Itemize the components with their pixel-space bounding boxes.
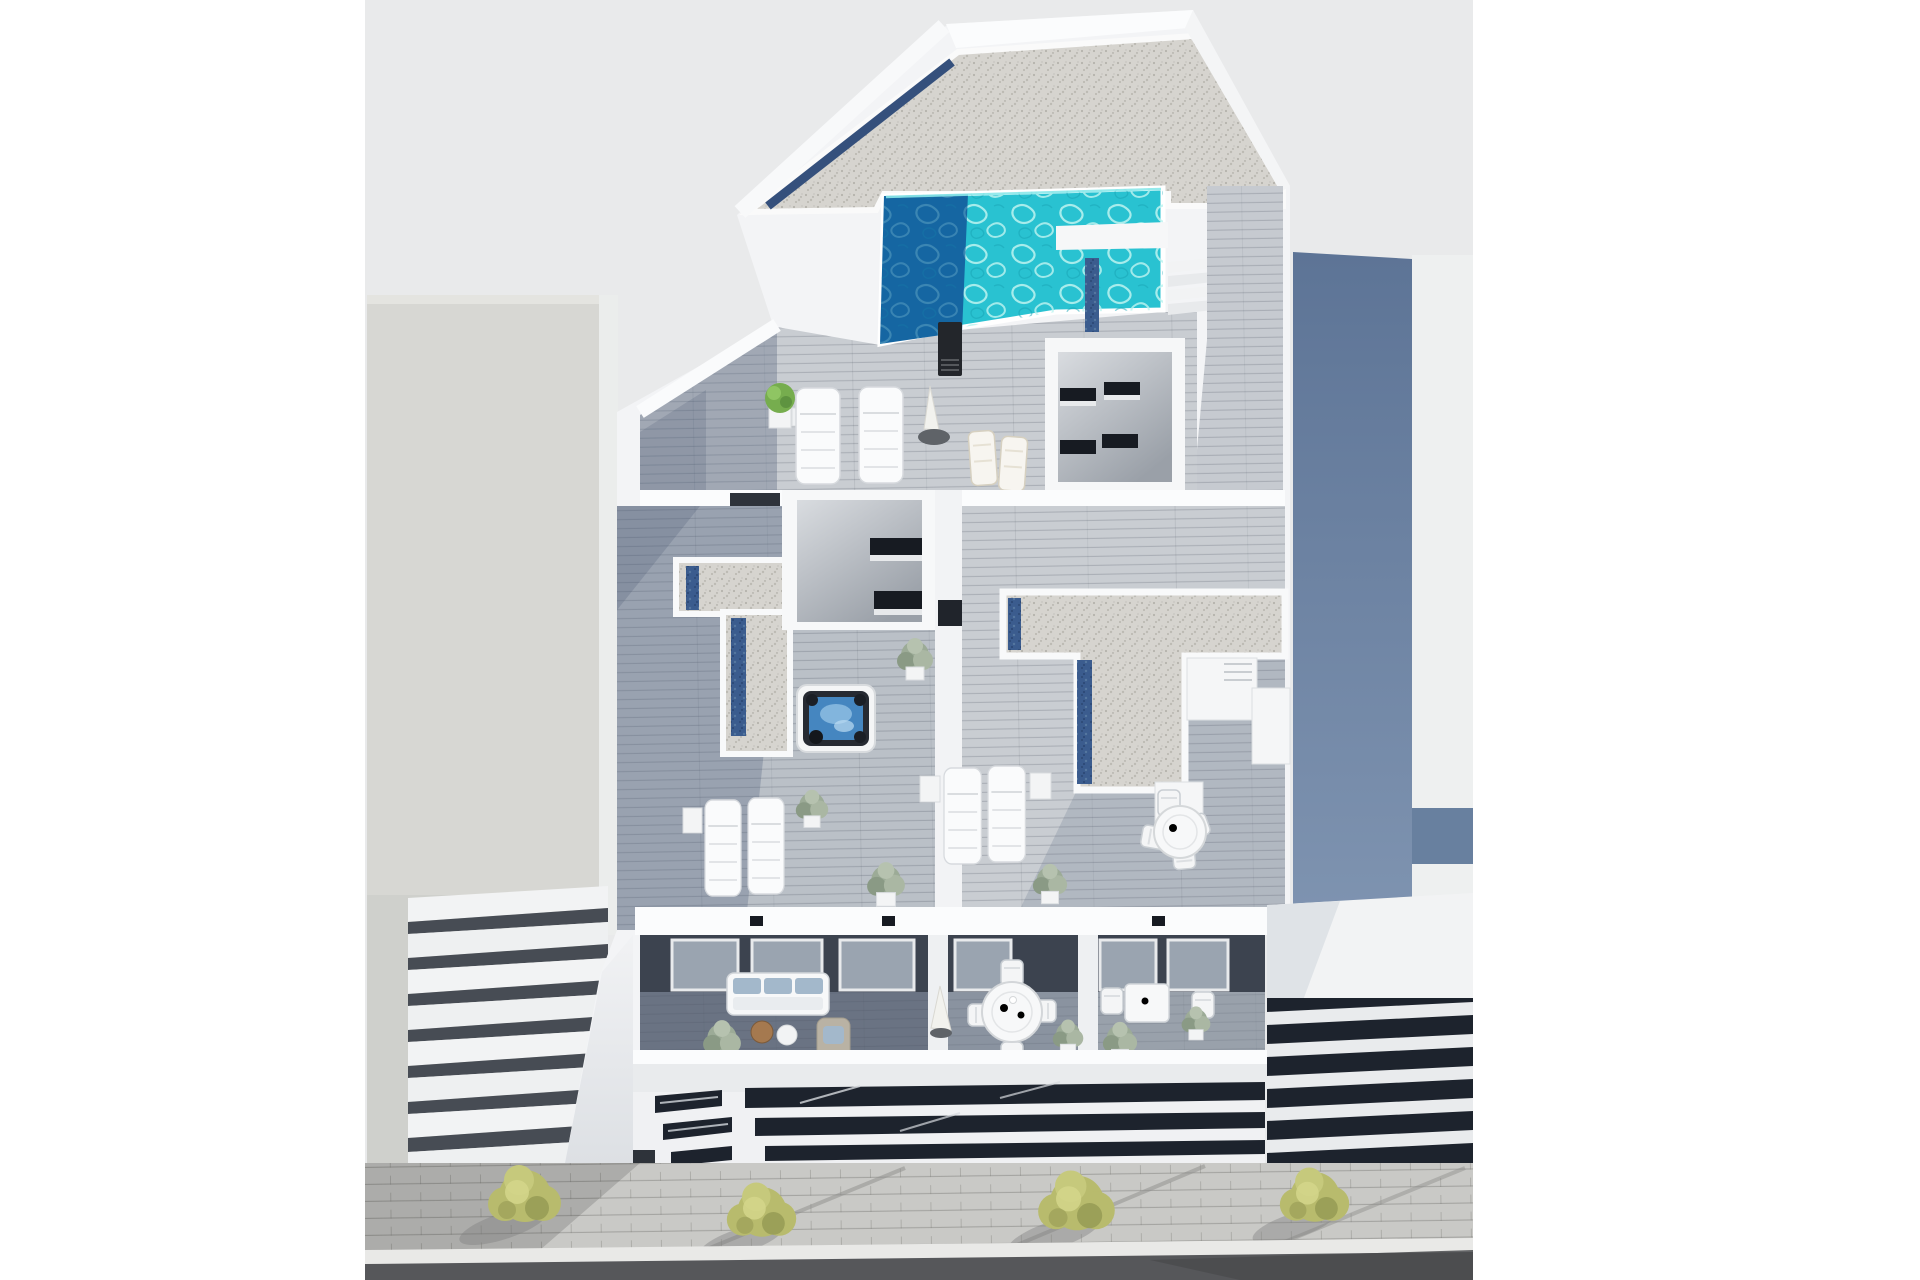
skylight-strip — [686, 566, 699, 610]
skylight-strip — [1085, 258, 1099, 332]
mid-right-terrace — [920, 506, 1290, 930]
side-table — [920, 776, 940, 802]
sun-lounger — [988, 766, 1025, 862]
bottom-facade — [620, 1082, 1265, 1166]
side-table — [683, 808, 702, 833]
potted-bush — [765, 383, 795, 428]
left-neighbor-building — [367, 295, 618, 1163]
slit-window — [1104, 382, 1140, 395]
right-building-shadow-wall — [1293, 252, 1412, 910]
stairwell-enclosure — [782, 490, 935, 630]
sun-lounger — [859, 387, 903, 483]
pool-deck-tongue — [1056, 222, 1168, 250]
balcony-front-parapet — [633, 1050, 1267, 1064]
coffee-table — [777, 1025, 797, 1045]
facade-window-bands — [745, 1082, 1265, 1161]
sun-lounger — [748, 798, 784, 894]
skylight-strip — [1077, 660, 1092, 784]
stair-opening — [730, 493, 780, 506]
balcony-level — [633, 935, 1267, 1092]
balcony-parapet-band — [635, 907, 1285, 935]
skylight-strip — [731, 618, 746, 736]
street — [365, 1163, 1473, 1280]
slit-window — [870, 538, 922, 555]
deck-chair — [968, 430, 998, 486]
architectural-render — [0, 0, 1920, 1280]
mid-left-terrace — [617, 490, 962, 930]
slit-window — [1102, 434, 1138, 448]
slit-window — [1060, 388, 1096, 401]
coffee-table — [751, 1021, 773, 1043]
jacuzzi-hot-tub — [797, 685, 875, 752]
render-canvas — [0, 0, 1920, 1280]
door-opening — [938, 600, 962, 626]
skylight-strip — [1008, 598, 1021, 650]
slit-window — [874, 591, 922, 609]
sun-lounger — [944, 768, 981, 864]
outdoor-shower-column — [938, 322, 962, 376]
sun-lounger — [705, 800, 741, 896]
left-building-wall — [367, 295, 618, 935]
slit-window — [1060, 440, 1096, 454]
round-table — [982, 982, 1042, 1042]
deck-chair — [998, 436, 1028, 492]
side-table — [1030, 773, 1051, 799]
right-neighbor-lower — [1267, 893, 1473, 1163]
sun-lounger — [796, 388, 840, 484]
